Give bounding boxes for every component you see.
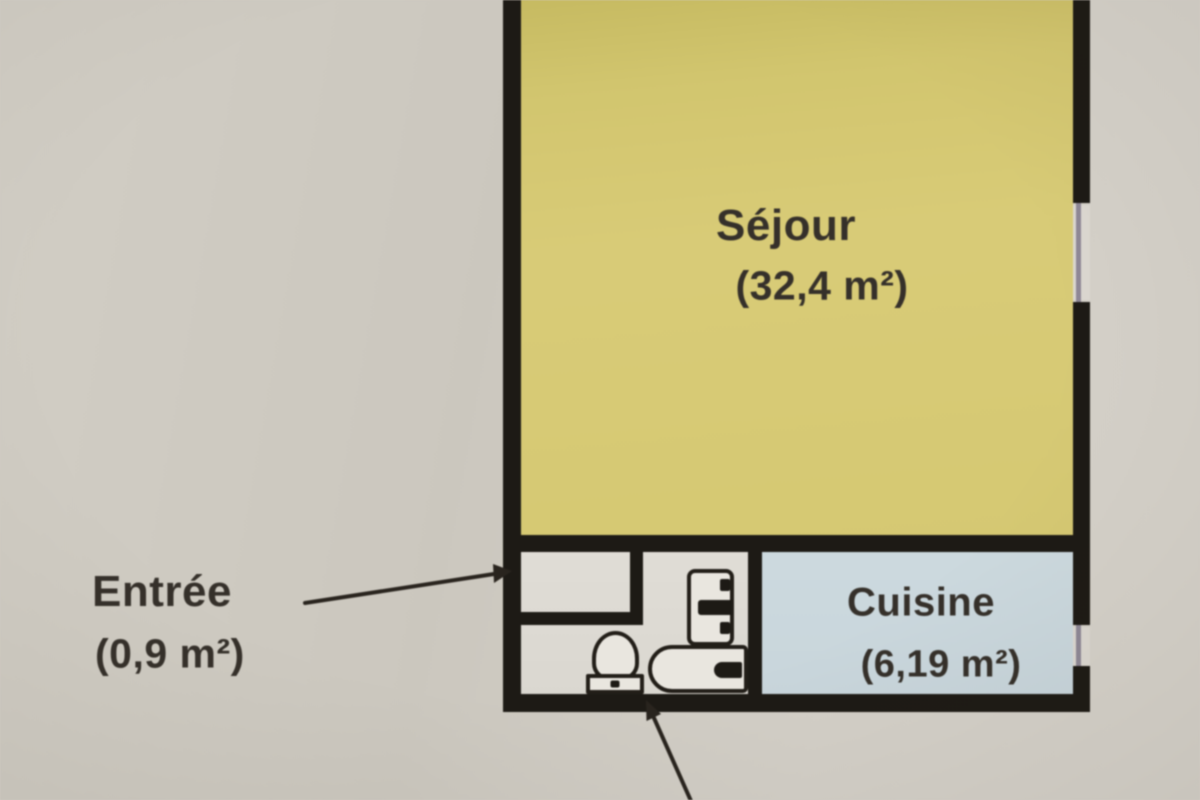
washbasin-knob-icon <box>720 622 730 634</box>
cuisine-room-label: Cuisine <box>847 581 995 626</box>
toilet-tank-icon <box>586 674 644 694</box>
bathroom-pointer-arrow <box>646 700 691 800</box>
entree-pointer-arrow <box>305 564 512 603</box>
washbasin-faucet-icon <box>698 600 732 615</box>
outer-wall-right-middle <box>1073 302 1090 625</box>
bathtub-icon <box>648 645 748 693</box>
wall-sejour-south <box>521 535 1073 552</box>
washbasin-icon <box>687 569 734 646</box>
cuisine-window-glass-line <box>1076 625 1081 668</box>
washbasin-knob-icon <box>720 579 730 591</box>
sejour-window-glass-line <box>1076 203 1081 302</box>
sejour-area-label: (32,4 m²) <box>735 263 908 310</box>
outer-wall-right-upper <box>1073 0 1090 203</box>
outer-wall-bottom <box>503 694 1090 712</box>
bathtub-faucet-icon <box>714 662 742 678</box>
wall-entree-south <box>503 612 643 625</box>
toilet-flush-icon <box>611 681 620 688</box>
outer-wall-left <box>503 0 521 712</box>
cuisine-area-label: (6,19 m²) <box>861 644 1022 687</box>
floor-plan-photo: Séjour (32,4 m²) Cuisine (6,19 m²) Entré… <box>0 0 1200 800</box>
entree-room-label: Entrée <box>92 567 232 617</box>
wall-bathroom-cuisine <box>748 535 762 694</box>
sejour-room-label: Séjour <box>716 201 856 251</box>
entree-area-label: (0,9 m²) <box>95 631 245 678</box>
